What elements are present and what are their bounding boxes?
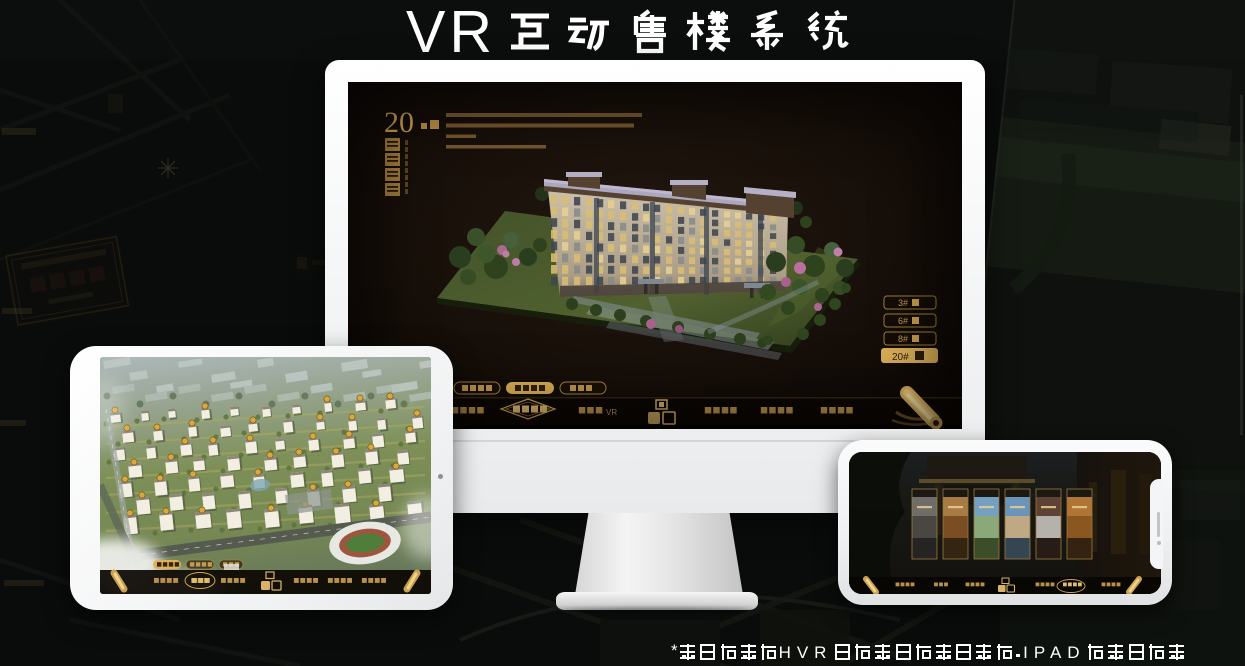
- svg-text:3#: 3#: [898, 298, 908, 308]
- svg-text:20#: 20#: [892, 352, 909, 363]
- svg-text:6#: 6#: [898, 316, 908, 326]
- svg-text:VR: VR: [406, 5, 496, 57]
- svg-text:8#: 8#: [898, 334, 908, 344]
- svg-text:20: 20: [384, 106, 414, 139]
- svg-text:VR: VR: [606, 408, 617, 417]
